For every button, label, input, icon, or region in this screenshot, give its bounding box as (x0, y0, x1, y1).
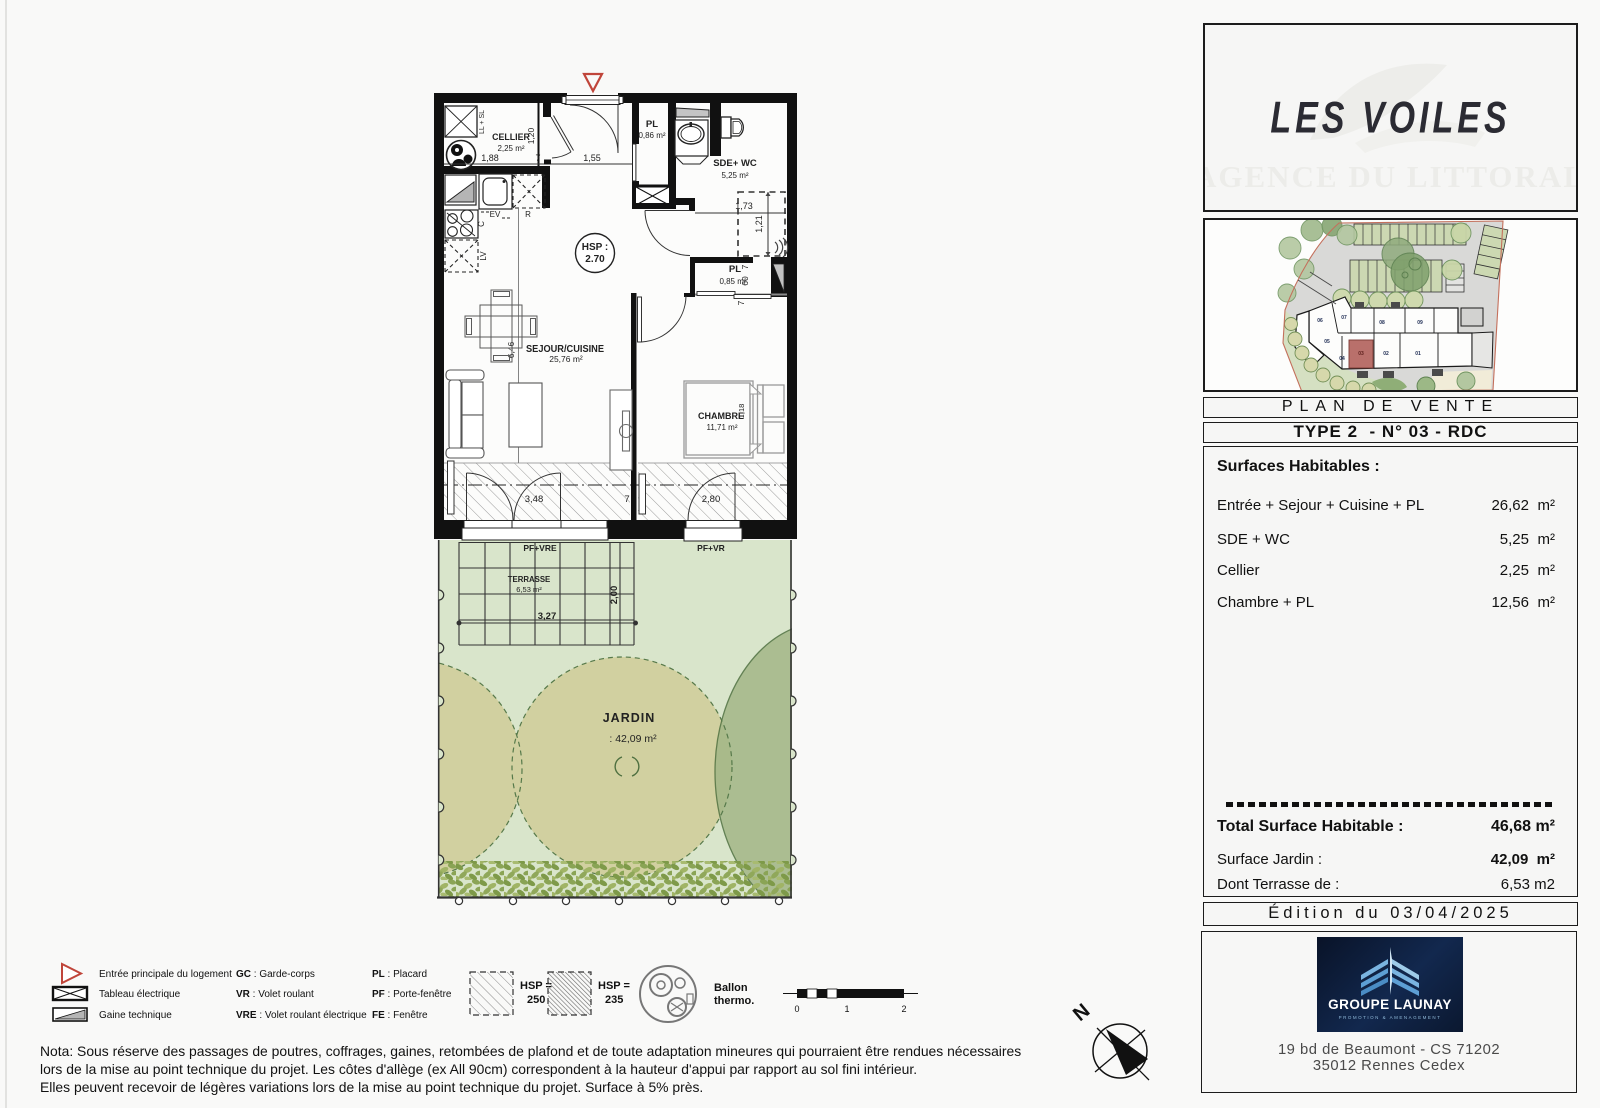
svg-text:3,27: 3,27 (538, 611, 557, 622)
svg-text:GC : Garde-corps: GC : Garde-corps (236, 969, 315, 980)
svg-text:5,25 m²: 5,25 m² (721, 171, 748, 180)
svg-text:60: 60 (740, 276, 750, 286)
svg-text:1,18: 1,18 (737, 404, 746, 419)
svg-text:N: N (1069, 1000, 1094, 1026)
svg-text:LL + SL: LL + SL (479, 110, 486, 134)
svg-text:JARDIN: JARDIN (603, 711, 656, 725)
svg-text:PF+VR: PF+VR (697, 543, 725, 553)
svg-text:09: 09 (1417, 320, 1423, 326)
svg-text:7: 7 (624, 494, 629, 505)
svg-text:1,73: 1,73 (735, 201, 753, 211)
svg-text:7: 7 (535, 153, 540, 163)
svg-text:11,71 m²: 11,71 m² (707, 423, 738, 432)
svg-text:2: 2 (901, 1004, 906, 1014)
svg-text:7: 7 (740, 264, 750, 269)
svg-text:2.70: 2.70 (585, 254, 605, 265)
svg-text:05: 05 (1324, 339, 1330, 345)
svg-text:6,53 m²: 6,53 m² (516, 585, 542, 594)
svg-text:04: 04 (1339, 356, 1345, 362)
svg-text:25,76 m²: 25,76 m² (549, 354, 583, 364)
svg-text:2,25 m²: 2,25 m² (497, 144, 524, 153)
svg-text:HSP =: HSP = (520, 980, 552, 992)
svg-text:LV: LV (479, 251, 488, 261)
svg-text:GROUPE LAUNAY: GROUPE LAUNAY (1328, 997, 1452, 1012)
svg-text:7: 7 (736, 300, 746, 305)
svg-text:250: 250 (527, 994, 545, 1006)
svg-text:HSP :: HSP : (582, 242, 609, 253)
svg-text:Gaine technique: Gaine technique (99, 1010, 172, 1021)
svg-text:VR : Volet roulant: VR : Volet roulant (236, 989, 314, 1000)
svg-text:HSP =: HSP = (598, 980, 630, 992)
svg-text:FE : Fenêtre: FE : Fenêtre (372, 1010, 428, 1021)
svg-text:AGENCE DU LITTORAL: AGENCE DU LITTORAL (1205, 159, 1576, 194)
svg-text:R: R (525, 210, 531, 219)
svg-text:PF : Porte-fenêtre: PF : Porte-fenêtre (372, 989, 452, 1000)
svg-text:PL: PL (646, 119, 658, 130)
svg-text:2,80: 2,80 (702, 494, 721, 505)
svg-text:1,55: 1,55 (583, 153, 601, 163)
svg-text:1,21: 1,21 (754, 215, 764, 233)
svg-text:3,48: 3,48 (525, 494, 544, 505)
svg-text:2,00: 2,00 (609, 586, 620, 605)
svg-text:08: 08 (1379, 320, 1385, 326)
svg-text:EV: EV (490, 210, 501, 219)
svg-text:VRE : Volet roulant électrique: VRE : Volet roulant électrique (236, 1010, 367, 1021)
svg-text:1,20: 1,20 (526, 127, 536, 144)
svg-text:01: 01 (1415, 351, 1421, 357)
svg-text:235: 235 (605, 994, 623, 1006)
svg-text:0: 0 (794, 1004, 799, 1014)
svg-text:Tableau électrique: Tableau électrique (99, 989, 181, 1000)
svg-text:SDE+ WC: SDE+ WC (713, 158, 757, 169)
svg-text:06: 06 (1317, 318, 1323, 324)
svg-text:07: 07 (1341, 315, 1347, 321)
svg-text:1: 1 (844, 1004, 849, 1014)
svg-text:TERRASSE: TERRASSE (508, 575, 550, 584)
svg-text:: 42,09 m²: : 42,09 m² (609, 733, 657, 745)
svg-text:0,86 m²: 0,86 m² (638, 131, 665, 140)
svg-text:02: 02 (1383, 351, 1389, 357)
svg-text:Entrée principale du logement: Entrée principale du logement (99, 969, 232, 980)
svg-text:03: 03 (1358, 351, 1364, 357)
svg-text:1,88: 1,88 (481, 153, 499, 163)
svg-text:CELLIER: CELLIER (492, 132, 530, 142)
svg-text:Ballon: Ballon (714, 982, 748, 994)
svg-text:thermo.: thermo. (714, 995, 754, 1007)
svg-text:PROMOTION & AMENAGEMENT: PROMOTION & AMENAGEMENT (1339, 1015, 1442, 1020)
svg-text:C: C (477, 221, 486, 227)
svg-text:PF+VRE: PF+VRE (523, 543, 557, 553)
svg-text:PL : Placard: PL : Placard (372, 969, 427, 980)
